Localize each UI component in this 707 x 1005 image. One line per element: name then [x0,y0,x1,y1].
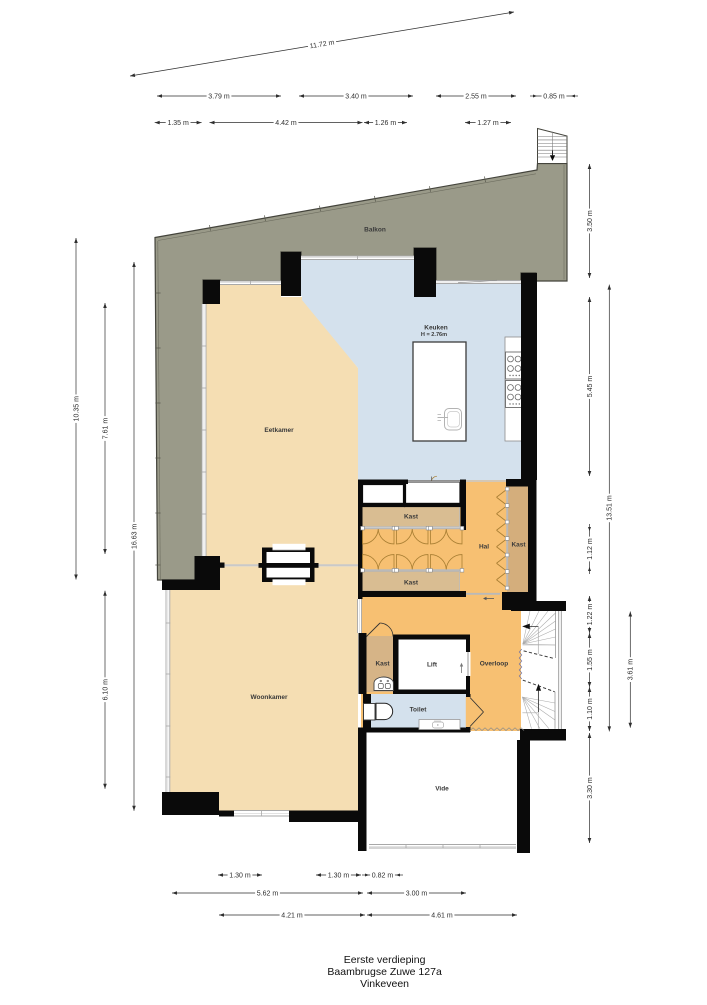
svg-text:3.61 m: 3.61 m [628,659,635,681]
svg-text:0.82 m: 0.82 m [372,872,394,879]
svg-text:1.30 m: 1.30 m [229,872,251,879]
svg-text:16.63 m: 16.63 m [131,524,138,549]
svg-text:10.35 m: 10.35 m [73,396,80,421]
svg-text:Toilet: Toilet [410,707,428,714]
svg-text:5.45 m: 5.45 m [587,376,594,398]
svg-text:7.61 m: 7.61 m [102,418,109,440]
svg-text:1.30 m: 1.30 m [328,872,350,879]
svg-text:Kast: Kast [404,580,419,587]
svg-text:H = 2.76m: H = 2.76m [421,332,447,338]
svg-text:Lift: Lift [427,662,438,669]
svg-text:3.30 m: 3.30 m [587,777,594,799]
svg-text:0.85 m: 0.85 m [543,93,565,100]
svg-text:Balkon: Balkon [364,227,386,234]
svg-text:Kast: Kast [511,542,526,549]
svg-text:3.00 m: 3.00 m [406,890,428,897]
svg-text:Eetkamer: Eetkamer [264,427,294,434]
svg-text:Baambrugse Zuwe 127a: Baambrugse Zuwe 127a [327,966,442,978]
svg-text:Keuken: Keuken [424,325,448,332]
svg-text:1.26 m: 1.26 m [375,120,397,127]
svg-text:3.79 m: 3.79 m [208,93,230,100]
svg-text:1.10 m: 1.10 m [587,698,594,720]
svg-text:4.61 m: 4.61 m [431,912,453,919]
svg-text:3.50 m: 3.50 m [587,210,594,232]
svg-text:1.35 m: 1.35 m [167,120,189,127]
svg-text:1.22 m: 1.22 m [587,604,594,626]
svg-text:Vide: Vide [435,786,449,793]
svg-text:2.55 m: 2.55 m [465,93,487,100]
svg-text:Kast: Kast [375,661,390,668]
svg-text:4.42 m: 4.42 m [275,120,297,127]
svg-text:1.12 m: 1.12 m [587,538,594,560]
svg-text:13.51 m: 13.51 m [607,495,614,520]
svg-text:Overloop: Overloop [480,661,509,668]
svg-text:Vinkeveen: Vinkeveen [360,978,409,990]
svg-text:6.10 m: 6.10 m [102,679,109,701]
svg-text:Eerste verdieping: Eerste verdieping [344,954,426,966]
svg-text:1.27 m: 1.27 m [477,120,499,127]
svg-text:5.62 m: 5.62 m [257,890,279,897]
svg-text:1.55 m: 1.55 m [587,649,594,671]
svg-text:3.40 m: 3.40 m [345,93,367,100]
svg-text:4.21 m: 4.21 m [281,912,303,919]
svg-text:Hal: Hal [479,544,489,551]
svg-text:Woonkamer: Woonkamer [250,694,288,701]
svg-text:Kast: Kast [404,514,419,521]
